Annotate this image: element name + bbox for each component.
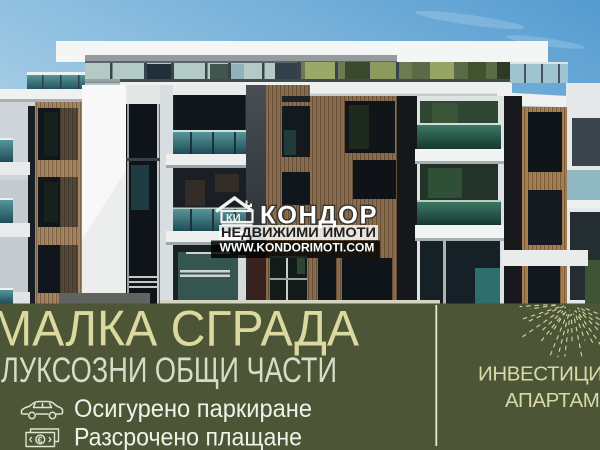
svg-text:АПАРТАМЕНТИ: АПАРТАМЕНТИ [505, 389, 600, 412]
svg-text:ЛУКСОЗНИ ОБЩИ ЧАСТИ: ЛУКСОЗНИ ОБЩИ ЧАСТИ [1, 351, 337, 390]
svg-text:€: € [38, 435, 43, 445]
svg-text:МАЛКА СГРАДА: МАЛКА СГРАДА [0, 301, 360, 357]
svg-text:Разсрочено плащане: Разсрочено плащане [74, 424, 302, 450]
svg-text:КИ: КИ [226, 213, 241, 225]
svg-text:ИНВЕСТИЦИОННИ: ИНВЕСТИЦИОННИ [478, 363, 600, 386]
svg-text:НЕДВИЖИМИ ИМОТИ: НЕДВИЖИМИ ИМОТИ [221, 225, 376, 240]
svg-text:Осигурено паркиране: Осигурено паркиране [74, 395, 312, 423]
svg-text:WWW.KONDORIMOTI.COM: WWW.KONDORIMOTI.COM [220, 241, 375, 255]
